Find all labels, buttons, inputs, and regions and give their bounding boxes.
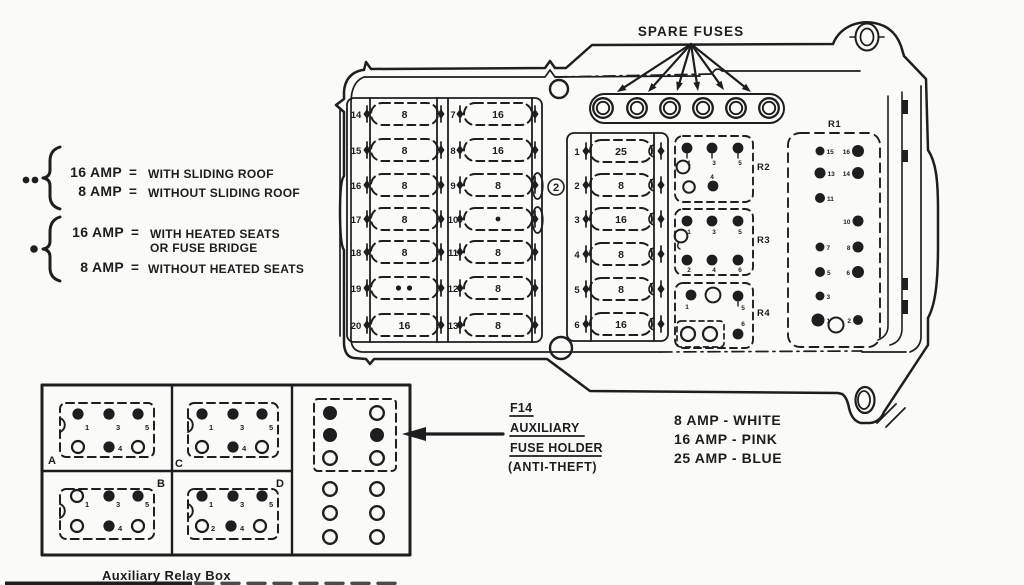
svg-text:R1: R1 xyxy=(828,119,841,130)
svg-text:17: 17 xyxy=(351,215,362,226)
svg-text:6: 6 xyxy=(574,320,579,331)
svg-text:8: 8 xyxy=(402,145,408,157)
svg-text:16: 16 xyxy=(615,214,627,226)
svg-text:8: 8 xyxy=(495,320,501,332)
svg-text:5: 5 xyxy=(269,500,273,509)
svg-text:8: 8 xyxy=(402,109,408,121)
svg-text:14: 14 xyxy=(843,171,851,178)
svg-text:15: 15 xyxy=(351,146,362,157)
svg-text:3: 3 xyxy=(240,500,244,509)
svg-text:4: 4 xyxy=(574,250,580,261)
svg-text:8: 8 xyxy=(495,180,501,192)
svg-text:6: 6 xyxy=(741,321,745,328)
svg-text:Auxiliary Relay Box: Auxiliary Relay Box xyxy=(102,568,231,583)
svg-text:16 AMP - PINK: 16 AMP - PINK xyxy=(674,431,778,447)
svg-text:2: 2 xyxy=(687,267,691,274)
svg-text:6: 6 xyxy=(738,267,742,274)
svg-text:R4: R4 xyxy=(757,308,770,319)
svg-text:3: 3 xyxy=(712,160,716,167)
svg-text:(ANTI-THEFT): (ANTI-THEFT) xyxy=(508,460,597,474)
svg-text:3: 3 xyxy=(240,423,244,432)
svg-text:A: A xyxy=(48,455,56,467)
svg-text:5: 5 xyxy=(827,270,831,277)
svg-text:3: 3 xyxy=(827,294,831,301)
svg-text:R3: R3 xyxy=(757,235,770,246)
svg-text:5: 5 xyxy=(738,229,742,236)
svg-text:=: = xyxy=(129,184,137,199)
svg-text:4: 4 xyxy=(118,444,123,453)
svg-text:5: 5 xyxy=(269,423,273,432)
svg-text:8: 8 xyxy=(402,247,408,259)
svg-text:19: 19 xyxy=(351,284,362,295)
svg-text:16 AMP: 16 AMP xyxy=(70,164,122,180)
svg-text:WITHOUT HEATED SEATS: WITHOUT HEATED SEATS xyxy=(148,262,304,276)
svg-text:16: 16 xyxy=(843,149,851,156)
svg-text:2: 2 xyxy=(211,524,215,533)
svg-text:C: C xyxy=(175,458,183,470)
svg-text:=: = xyxy=(131,225,139,240)
svg-text:25 AMP - BLUE: 25 AMP - BLUE xyxy=(674,450,782,466)
svg-text:5: 5 xyxy=(574,285,580,296)
svg-text:4: 4 xyxy=(710,174,714,181)
svg-text:3: 3 xyxy=(712,229,716,236)
svg-text:8: 8 xyxy=(450,146,455,157)
svg-text:1: 1 xyxy=(574,147,580,158)
svg-text:18: 18 xyxy=(351,248,362,259)
svg-text:8 AMP: 8 AMP xyxy=(80,259,124,275)
svg-text:4: 4 xyxy=(712,267,716,274)
svg-text:2: 2 xyxy=(553,182,559,194)
svg-text:25: 25 xyxy=(615,146,627,158)
svg-text:14: 14 xyxy=(351,110,362,121)
svg-text:AUXILIARY: AUXILIARY xyxy=(510,421,580,435)
svg-text:8: 8 xyxy=(402,214,408,226)
svg-text:16: 16 xyxy=(615,319,627,331)
svg-text:16: 16 xyxy=(492,145,504,157)
svg-text:1: 1 xyxy=(209,423,213,432)
svg-text:4: 4 xyxy=(118,524,123,533)
svg-text:2: 2 xyxy=(847,318,851,325)
svg-text:4: 4 xyxy=(242,444,247,453)
svg-text:1: 1 xyxy=(85,423,89,432)
svg-text:16: 16 xyxy=(399,320,411,332)
svg-text:D: D xyxy=(276,478,284,490)
svg-text:12: 12 xyxy=(448,284,459,295)
svg-text:9: 9 xyxy=(450,181,455,192)
svg-text:1: 1 xyxy=(85,500,89,509)
svg-text:=: = xyxy=(129,165,137,180)
svg-text:5: 5 xyxy=(741,305,745,312)
svg-text:10: 10 xyxy=(843,219,851,226)
svg-text:15: 15 xyxy=(827,149,835,156)
svg-text:8 AMP: 8 AMP xyxy=(78,183,122,199)
svg-text:FUSE HOLDER: FUSE HOLDER xyxy=(510,441,603,455)
svg-text:B: B xyxy=(157,478,165,490)
svg-text:R2: R2 xyxy=(757,162,770,173)
svg-text:8: 8 xyxy=(495,283,501,295)
svg-text:5: 5 xyxy=(145,423,149,432)
svg-text:13: 13 xyxy=(828,171,836,178)
svg-text:8 AMP - WHITE: 8 AMP - WHITE xyxy=(674,412,781,428)
svg-text:4: 4 xyxy=(240,524,245,533)
svg-text:16: 16 xyxy=(492,109,504,121)
svg-text:10: 10 xyxy=(448,215,459,226)
svg-text:11: 11 xyxy=(827,196,834,203)
svg-text:1: 1 xyxy=(209,500,213,509)
svg-text:8: 8 xyxy=(847,245,851,252)
svg-text:20: 20 xyxy=(351,321,362,332)
svg-text:F14: F14 xyxy=(510,401,532,415)
svg-text:16 AMP: 16 AMP xyxy=(72,224,124,240)
svg-text:=: = xyxy=(131,260,139,275)
svg-text:3: 3 xyxy=(116,500,120,509)
svg-text:8: 8 xyxy=(618,180,624,192)
svg-text:SPARE FUSES: SPARE FUSES xyxy=(638,24,744,39)
svg-text:6: 6 xyxy=(846,270,850,277)
svg-text:7: 7 xyxy=(827,245,831,252)
svg-text:8: 8 xyxy=(495,247,501,259)
svg-text:13: 13 xyxy=(448,321,459,332)
svg-text:8: 8 xyxy=(618,284,624,296)
svg-text:8: 8 xyxy=(618,249,624,261)
svg-text:3: 3 xyxy=(116,423,120,432)
svg-text:OR FUSE BRIDGE: OR FUSE BRIDGE xyxy=(150,241,258,255)
svg-text:5: 5 xyxy=(145,500,149,509)
svg-text:5: 5 xyxy=(738,160,742,167)
svg-text:11: 11 xyxy=(448,248,459,259)
svg-text:WITH HEATED SEATS: WITH HEATED SEATS xyxy=(150,227,280,241)
svg-text:1: 1 xyxy=(685,304,689,311)
svg-text:WITH SLIDING ROOF: WITH SLIDING ROOF xyxy=(148,167,274,181)
svg-text:3: 3 xyxy=(574,215,579,226)
svg-text:2: 2 xyxy=(574,181,579,192)
svg-text:8: 8 xyxy=(402,180,408,192)
svg-text:7: 7 xyxy=(450,110,455,121)
svg-text:16: 16 xyxy=(351,181,362,192)
svg-text:WITHOUT SLIDING ROOF: WITHOUT SLIDING ROOF xyxy=(148,186,300,200)
